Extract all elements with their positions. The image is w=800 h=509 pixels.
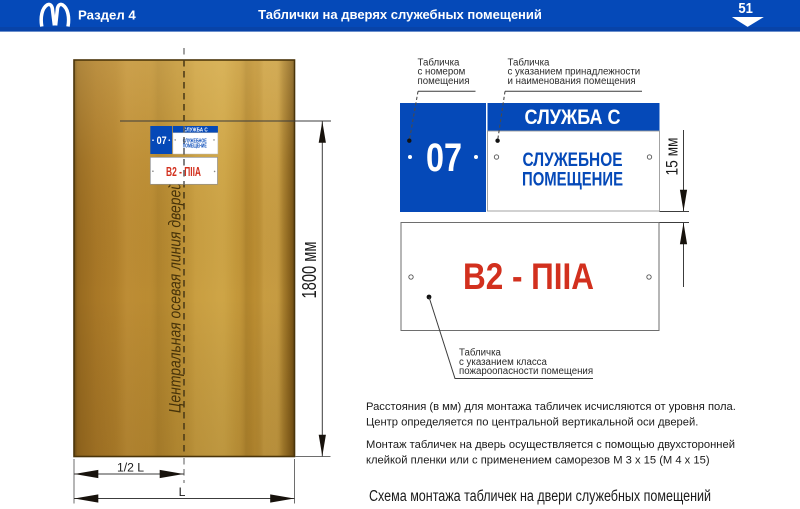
svg-text:и наименования помещения: и наименования помещения <box>508 76 636 87</box>
svg-text:15 мм: 15 мм <box>663 138 682 176</box>
svg-text:СЛУЖБА С: СЛУЖБА С <box>525 106 621 129</box>
svg-text:клейкой пленки или с применени: клейкой пленки или с применением саморез… <box>366 455 710 467</box>
svg-text:В2 - ПIIА: В2 - ПIIА <box>463 256 594 297</box>
svg-text:помещения: помещения <box>418 76 470 87</box>
svg-text:Монтаж табличек на дверь осуще: Монтаж табличек на дверь осуществляется … <box>366 439 735 451</box>
svg-text:Схема монтажа табличек на двер: Схема монтажа табличек на двери служебны… <box>369 488 711 505</box>
svg-text:ПОМЕЩЕНИЕ: ПОМЕЩЕНИЕ <box>522 170 623 191</box>
svg-text:Раздел 4: Раздел 4 <box>78 7 136 22</box>
svg-text:51: 51 <box>738 0 753 17</box>
svg-text:07: 07 <box>426 136 462 180</box>
svg-text:1/2 L: 1/2 L <box>117 460 144 474</box>
svg-text:Центральная осевая линия двере: Центральная осевая линия дверей <box>166 182 185 413</box>
svg-text:Расстояния (в мм) для монтажа: Расстояния (в мм) для монтажа табличек и… <box>366 401 736 413</box>
svg-text:L: L <box>179 485 186 499</box>
svg-text:Центр определяется по централь: Центр определяется по центральной вертик… <box>366 417 698 429</box>
svg-text:07: 07 <box>157 135 167 147</box>
svg-text:Таблички на дверях служебных п: Таблички на дверях служебных помещений <box>258 7 542 22</box>
svg-text:пожароопасности помещения: пожароопасности помещения <box>459 366 593 377</box>
svg-text:СЛУЖЕБНОЕ: СЛУЖЕБНОЕ <box>523 150 623 171</box>
svg-text:1800 мм: 1800 мм <box>299 242 321 299</box>
svg-text:ПОМЕЩЕНИЕ: ПОМЕЩЕНИЕ <box>183 143 207 149</box>
